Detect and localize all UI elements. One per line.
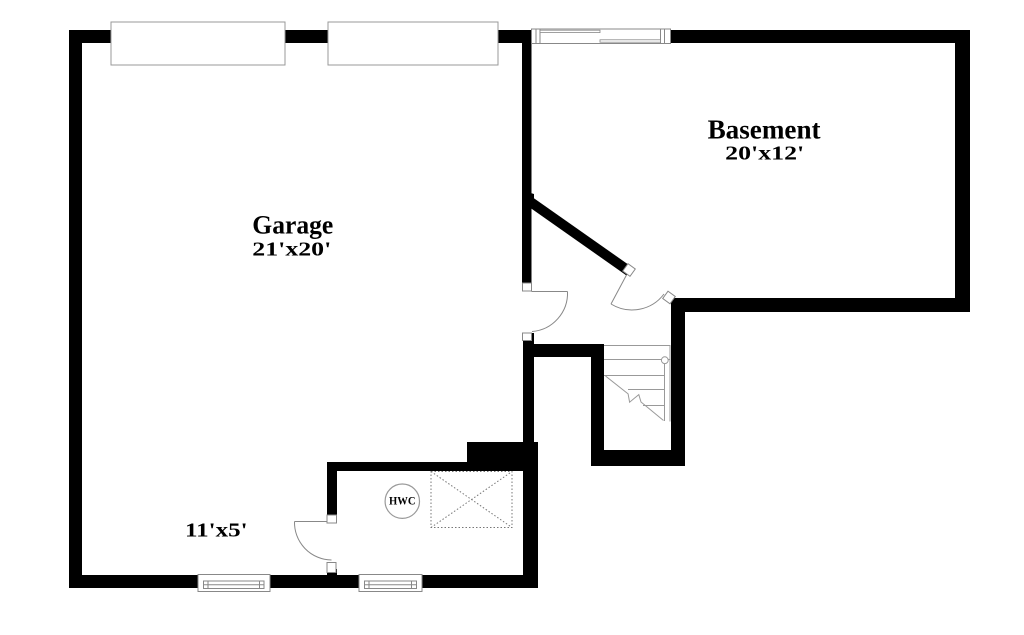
svg-text:HWC: HWC	[389, 496, 416, 508]
svg-text:20'x12': 20'x12'	[725, 143, 804, 165]
svg-text:11'x5': 11'x5'	[185, 520, 248, 542]
svg-text:21'x20': 21'x20'	[252, 238, 331, 260]
svg-text:Garage: Garage	[252, 211, 333, 240]
svg-text:Basement: Basement	[708, 115, 821, 145]
